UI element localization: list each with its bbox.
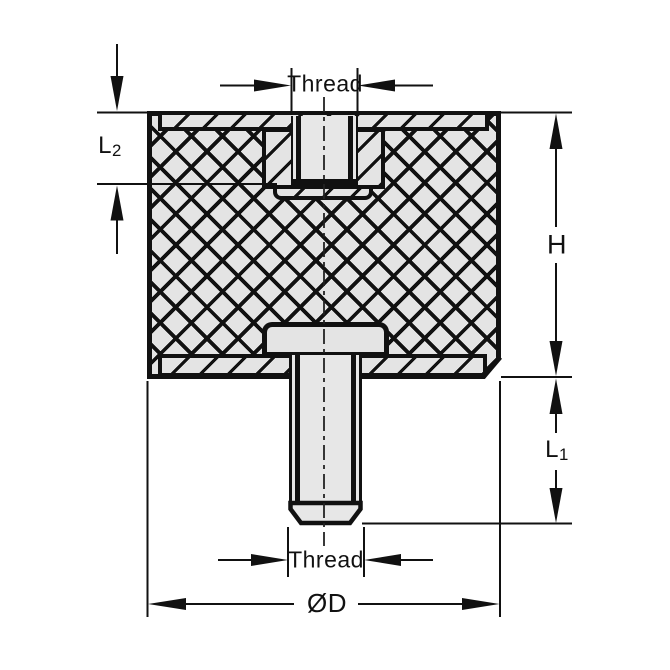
technical-drawing: Thread L2 H L1 Thread ØD — [0, 0, 670, 670]
extension-lines — [97, 68, 572, 617]
dim-label-diameter: ØD — [307, 590, 347, 616]
dimension-arrowheads — [111, 76, 563, 610]
l1-main: L — [545, 436, 559, 463]
dim-label-height: H — [547, 232, 567, 259]
l2-main: L — [98, 132, 112, 159]
dim-label-thread-bottom: Thread — [288, 549, 364, 572]
l1-sub: 1 — [559, 445, 569, 464]
l2-sub: 2 — [112, 141, 122, 160]
stud-chamfer — [291, 503, 361, 523]
dim-label-l2: L2 — [98, 134, 122, 160]
dim-label-l1: L1 — [545, 438, 569, 464]
dim-label-thread-top: Thread — [287, 73, 363, 96]
